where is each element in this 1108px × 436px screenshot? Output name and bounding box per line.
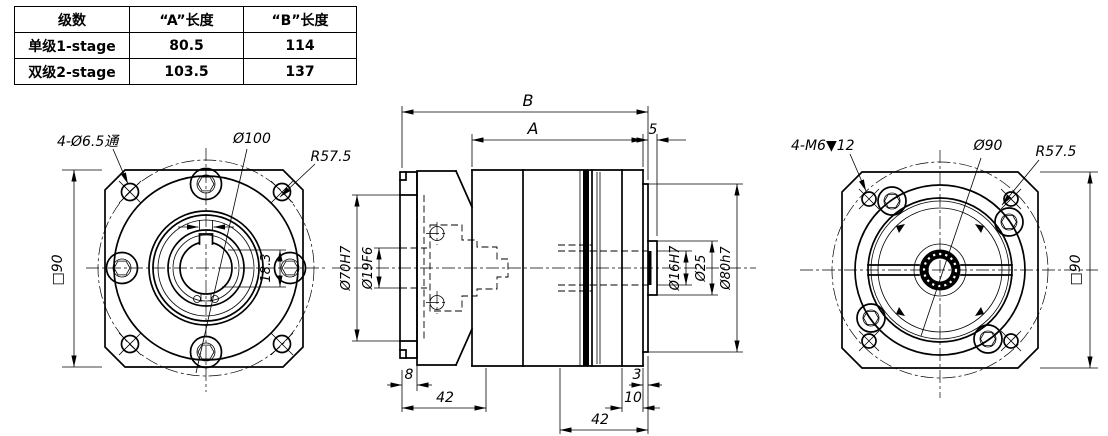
front-view: 4-Ø6.5通 Ø100 R57.5 □90 bbox=[50, 131, 352, 392]
front-centerlines bbox=[86, 148, 326, 392]
through-hole bbox=[119, 333, 141, 355]
dim-42-right-label: 42 bbox=[591, 412, 609, 428]
dim-b-label: B bbox=[523, 91, 534, 110]
dim-d16-label: Ø16H7 bbox=[668, 245, 683, 292]
through-hole bbox=[271, 181, 293, 203]
dim-boss-protrusion: 5 bbox=[632, 122, 686, 236]
tapped-hole bbox=[859, 331, 879, 351]
dim-d25-label: Ø25 bbox=[694, 255, 709, 283]
dim-d19-label: Ø19F6 bbox=[361, 247, 376, 291]
dim-3-label: 3 bbox=[633, 367, 642, 383]
front-radius-label: R57.5 bbox=[311, 149, 352, 165]
dim-42-left-label: 42 bbox=[436, 390, 454, 406]
tapped-hole bbox=[1001, 189, 1021, 209]
dim-5-label: 5 bbox=[649, 122, 658, 138]
dim-input-pilot-depth: 8 bbox=[387, 362, 432, 412]
drawing-svg: 4-Ø6.5通 Ø100 R57.5 □90 bbox=[0, 0, 1108, 436]
dim-a-label: A bbox=[527, 119, 539, 138]
rear-radius-label: R57.5 bbox=[1036, 144, 1077, 160]
dim-10-label: 10 bbox=[624, 390, 642, 406]
through-hole bbox=[271, 333, 293, 355]
front-bolt-circle-label: Ø100 bbox=[232, 131, 271, 147]
tapped-hole bbox=[859, 189, 879, 209]
rear-centerlines bbox=[800, 150, 1098, 398]
rear-bolt-circle-label: Ø90 bbox=[973, 138, 1003, 154]
rear-bolt-circle-leader bbox=[921, 158, 981, 336]
socket-screw bbox=[857, 304, 885, 332]
socket-screw bbox=[878, 187, 906, 215]
rear-tapped-holes-label: 4-M6▼12 bbox=[791, 138, 855, 154]
dim-overall-length-b: B bbox=[402, 91, 648, 180]
socket-screw bbox=[974, 325, 1002, 353]
dim-body-length-a: A bbox=[472, 119, 643, 167]
dim-front-frame-size: □90 bbox=[50, 170, 102, 367]
dim-8-label: 8 bbox=[405, 367, 414, 383]
dim-input-bore-dia: Ø19F6 bbox=[361, 247, 400, 291]
dim-input-section-length: 42 bbox=[402, 368, 486, 412]
dim-rear-radius: R57.5 bbox=[1002, 144, 1077, 205]
gearbox-drawing-canvas: 级数 “A”长度 “B”长度 单级1-stage 80.5 114 双级2-st… bbox=[0, 0, 1108, 436]
dim-rear-tapped-holes: 4-M6▼12 bbox=[791, 138, 866, 191]
front-frame-size-label: □90 bbox=[50, 254, 66, 285]
dim-d70-label: Ø70H7 bbox=[339, 245, 354, 292]
dim-d80-label: Ø80h7 bbox=[719, 246, 734, 291]
front-corner-holes-label: 4-Ø6.5通 bbox=[57, 134, 120, 150]
keyway-height-label: 18.3 bbox=[259, 254, 274, 283]
rear-view: 4-M6▼12 Ø90 R57.5 □90 bbox=[791, 138, 1098, 398]
through-hole bbox=[119, 181, 141, 203]
tapped-hole bbox=[1001, 331, 1021, 351]
side-view: B A 5 Ø70H7 bbox=[332, 91, 756, 434]
socket-screw bbox=[995, 208, 1023, 236]
rear-frame-size-label: □90 bbox=[1068, 254, 1084, 285]
